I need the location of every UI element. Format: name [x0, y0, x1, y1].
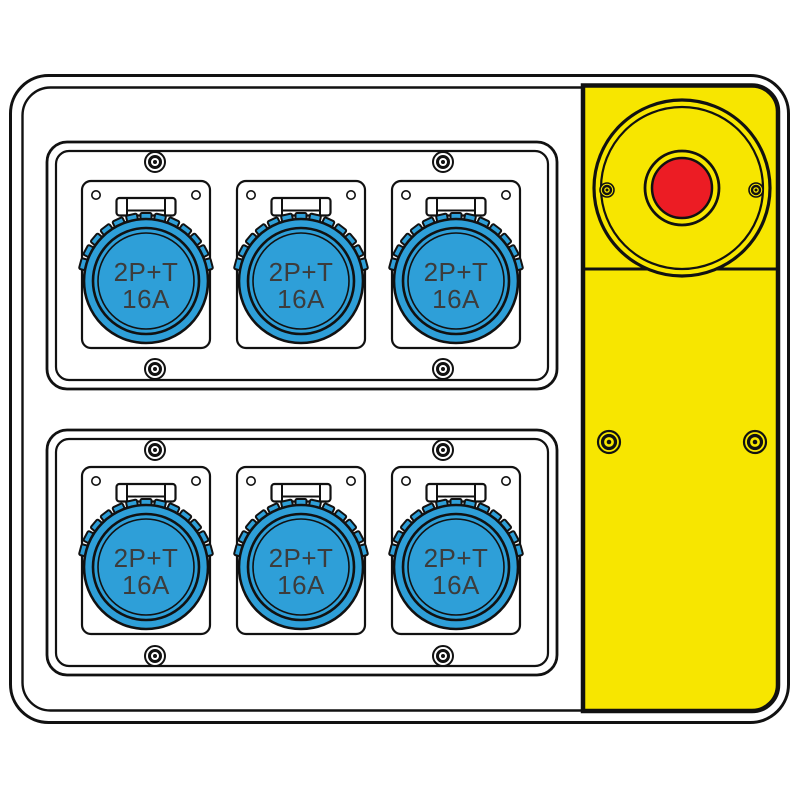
socket-label-line1: 2P+T — [114, 257, 179, 287]
plate-hole-icon — [402, 191, 410, 199]
plate-hole-icon — [92, 477, 100, 485]
emergency-stop-assembly — [594, 100, 770, 276]
socket-label-line1: 2P+T — [424, 257, 489, 287]
distribution-box-illustration: 2P+T 16A 2P+T 16A 2P+T 16A — [0, 0, 800, 800]
plate-hole-icon — [192, 191, 200, 199]
screw-icon — [145, 152, 165, 172]
socket-module-6: 2P+T 16A — [389, 467, 523, 634]
illustration-canvas: 2P+T 16A 2P+T 16A 2P+T 16A — [0, 0, 800, 800]
screw-icon — [433, 440, 453, 460]
socket-module-1: 2P+T 16A — [79, 181, 213, 348]
socket-module-5: 2P+T 16A — [234, 467, 368, 634]
socket-label-line2: 16A — [122, 284, 170, 314]
emergency-stop-button — [652, 158, 712, 218]
screw-icon — [433, 152, 453, 172]
screw-icon — [433, 646, 453, 666]
socket-label-line2: 16A — [432, 284, 480, 314]
socket-label-line2: 16A — [277, 570, 325, 600]
screw-icon — [433, 359, 453, 379]
screw-icon — [145, 359, 165, 379]
screw-icon — [744, 431, 766, 453]
socket-panel-top: 2P+T 16A 2P+T 16A 2P+T 16A — [47, 142, 557, 389]
socket-panel-bottom: 2P+T 16A 2P+T 16A 2P+T 16A — [47, 430, 557, 675]
socket-module-2: 2P+T 16A — [234, 181, 368, 348]
side-panel — [583, 86, 778, 712]
plate-hole-icon — [192, 477, 200, 485]
socket-module-3: 2P+T 16A — [389, 181, 523, 348]
socket-label-line2: 16A — [432, 570, 480, 600]
plate-hole-icon — [502, 477, 510, 485]
screw-icon — [145, 440, 165, 460]
screw-icon — [145, 646, 165, 666]
plate-hole-icon — [247, 477, 255, 485]
plate-hole-icon — [247, 191, 255, 199]
socket-label-line1: 2P+T — [269, 257, 334, 287]
screw-icon — [600, 183, 614, 197]
screw-icon — [598, 431, 620, 453]
socket-label-line1: 2P+T — [114, 543, 179, 573]
socket-label-line1: 2P+T — [424, 543, 489, 573]
socket-label-line2: 16A — [122, 570, 170, 600]
socket-module-4: 2P+T 16A — [79, 467, 213, 634]
plate-hole-icon — [502, 191, 510, 199]
socket-label-line2: 16A — [277, 284, 325, 314]
plate-hole-icon — [347, 191, 355, 199]
screw-icon — [749, 183, 763, 197]
socket-label-line1: 2P+T — [269, 543, 334, 573]
plate-hole-icon — [92, 191, 100, 199]
plate-hole-icon — [402, 477, 410, 485]
plate-hole-icon — [347, 477, 355, 485]
